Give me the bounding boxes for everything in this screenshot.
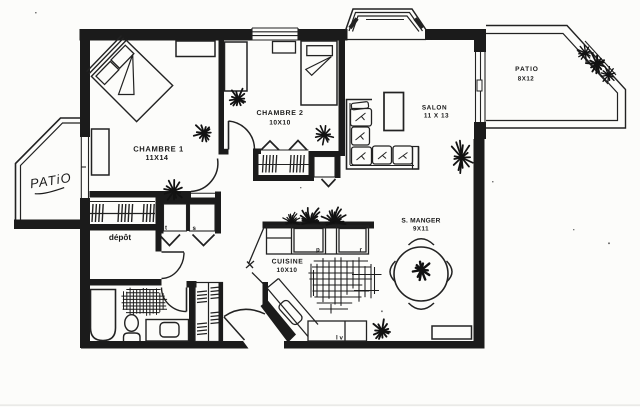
svg-text:t: t	[165, 225, 167, 232]
svg-text:10X10: 10X10	[269, 120, 291, 127]
svg-text:dépôt: dépôt	[109, 233, 132, 242]
svg-text:8X12: 8X12	[518, 76, 535, 83]
svg-text:CUISINE: CUISINE	[272, 259, 304, 266]
svg-text:10X10: 10X10	[277, 267, 298, 274]
svg-text:9X11: 9X11	[413, 226, 429, 233]
svg-text:p: p	[316, 247, 320, 254]
svg-text:s: s	[193, 225, 197, 232]
svg-text:S. MANGER: S. MANGER	[401, 218, 440, 225]
svg-text:11X14: 11X14	[146, 153, 169, 162]
svg-text:SALON: SALON	[422, 105, 447, 112]
svg-text:l v: l v	[336, 335, 343, 342]
svg-text:CHAMBRE 2: CHAMBRE 2	[256, 110, 303, 117]
svg-text:11 X 13: 11 X 13	[424, 113, 449, 120]
svg-text:PATIO: PATIO	[515, 66, 539, 73]
